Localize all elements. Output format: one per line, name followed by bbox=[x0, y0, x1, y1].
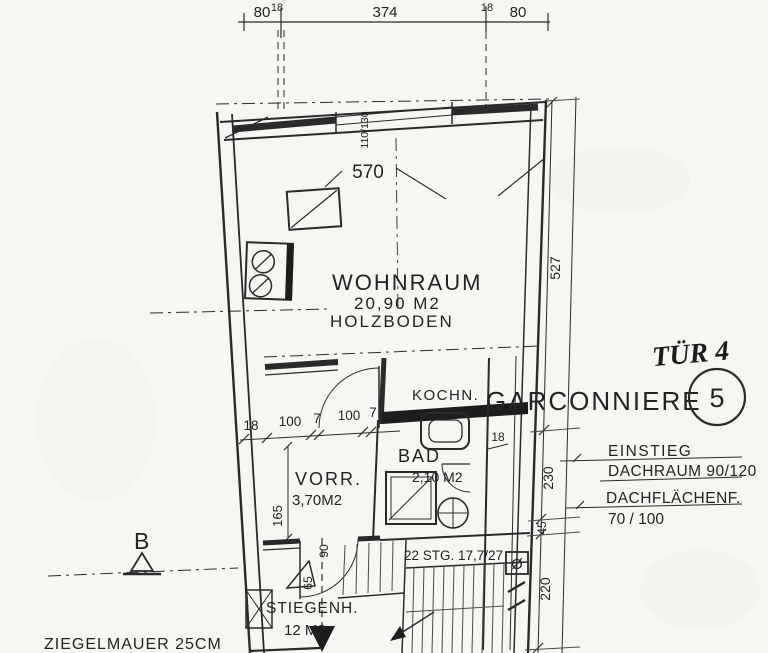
duct-symbol: Ø bbox=[511, 556, 523, 573]
floorplan-drawing: 80 18 374 18 80 110/130 570 bbox=[0, 0, 768, 653]
kochn-label: KOCHN. bbox=[412, 387, 479, 404]
stair-treads bbox=[412, 563, 504, 653]
dim-18-wall: 18 bbox=[491, 430, 505, 444]
stiegenhaus-label: STIEGENH. bbox=[266, 600, 359, 617]
room-wohnraum: WOHNRAUM 20,90 M2 HOLZBODEN bbox=[150, 270, 482, 331]
unit-label: GARCONNIERE bbox=[486, 386, 702, 416]
winder-steps bbox=[338, 541, 404, 598]
dim-chain100a: 100 bbox=[279, 414, 302, 429]
dim-18-left: 18 bbox=[271, 2, 283, 14]
section-letter: B bbox=[134, 528, 149, 554]
vorr-area: 3,70M2 bbox=[292, 492, 342, 509]
dim-570: 570 bbox=[352, 162, 384, 183]
entry-hall: 90 65 STIEGENH. 12 M2 bbox=[246, 538, 404, 652]
chimney bbox=[245, 242, 294, 300]
dim-chain100b: 100 bbox=[338, 408, 361, 423]
dim-80-right: 80 bbox=[510, 4, 527, 21]
dachflaeche-line2: 70 / 100 bbox=[608, 511, 664, 528]
chimney-fill bbox=[285, 244, 294, 300]
sink-basin bbox=[429, 420, 462, 442]
dim-165: 165 bbox=[270, 505, 285, 527]
window-size-label: 110/130 bbox=[359, 111, 371, 148]
dim-90: 90 bbox=[317, 544, 331, 558]
unit-number: 5 bbox=[709, 383, 724, 413]
dim-chain-top: 80 18 374 18 80 bbox=[238, 2, 550, 114]
bad-label: BAD bbox=[398, 446, 441, 466]
wall-material-note: ZIEGELMAUER 25CM bbox=[44, 636, 222, 653]
einstieg-line1: EINSTIEG bbox=[608, 443, 692, 460]
dim-chain7b: 7 bbox=[369, 405, 377, 420]
vorr-label: VORR. bbox=[295, 469, 362, 489]
dim-230: 230 bbox=[540, 466, 556, 490]
dim-374: 374 bbox=[372, 4, 397, 21]
leader-holzboden bbox=[150, 309, 328, 313]
stiegenhaus-area: 12 M2 bbox=[284, 622, 326, 639]
dim-chain18: 18 bbox=[243, 418, 258, 433]
shaft-box bbox=[287, 188, 342, 230]
floorplan-scan: 80 18 374 18 80 110/130 570 bbox=[0, 0, 768, 653]
dim-chain7a: 7 bbox=[313, 411, 321, 426]
section-marker: B bbox=[48, 528, 238, 576]
section-triangle bbox=[131, 553, 153, 571]
stair-note: 22 STG. 17,7/27 bbox=[404, 548, 503, 563]
wohnraum-label: WOHNRAUM bbox=[332, 270, 482, 295]
dim-527: 527 bbox=[547, 256, 563, 280]
wohnraum-area: 20,90 M2 bbox=[354, 294, 441, 313]
tuer-note: TÜR 4 bbox=[651, 336, 730, 374]
wohnraum-floor: HOLZBODEN bbox=[330, 312, 454, 331]
dim-220: 220 bbox=[537, 577, 553, 601]
dim-80-left: 80 bbox=[254, 4, 271, 21]
dim-45: 45 bbox=[535, 521, 549, 535]
annotations-right: TÜR 4 GARCONNIERE 5 EINSTIEG DACHRAUM 90… bbox=[486, 336, 757, 528]
dim-18-right: 18 bbox=[481, 2, 493, 14]
